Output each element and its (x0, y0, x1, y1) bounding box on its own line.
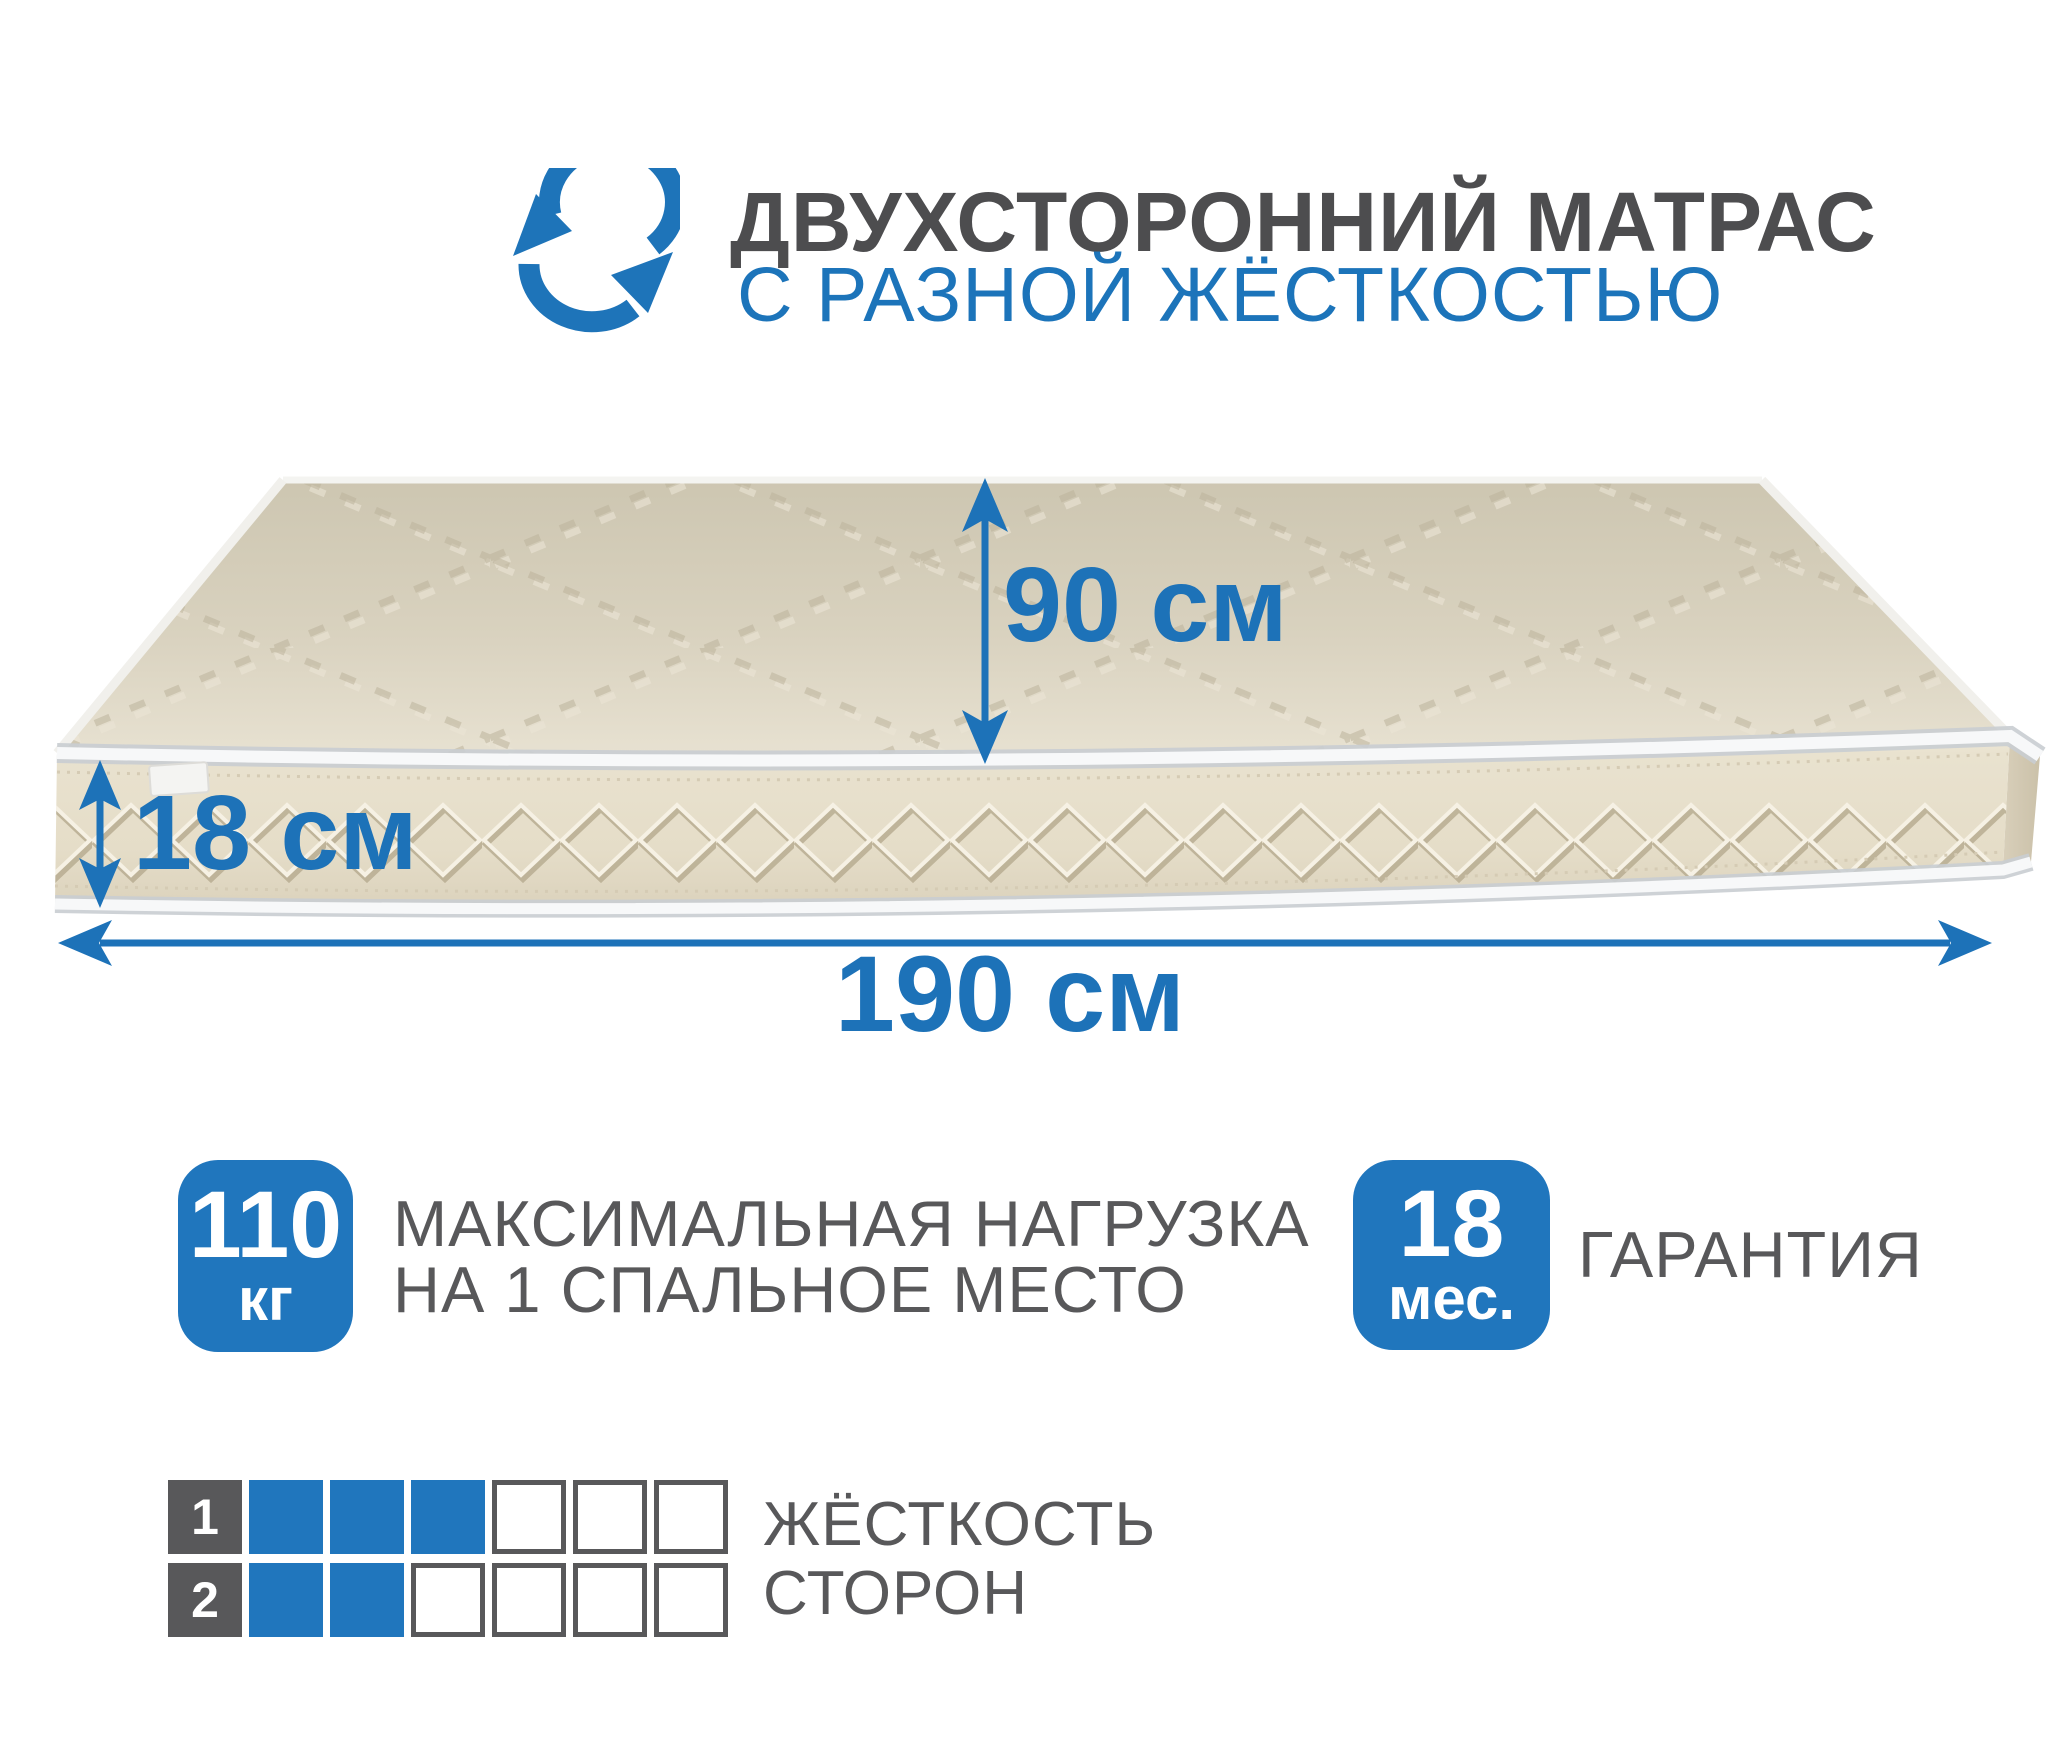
firmness-cell-empty (654, 1480, 728, 1554)
max-load-badge: 110 кг (178, 1160, 353, 1352)
width-dimension-label: 90 см (1003, 552, 1288, 658)
firmness-grid: 12 (168, 1480, 728, 1646)
max-load-value: 110 (189, 1182, 342, 1269)
firmness-cell-empty (492, 1563, 566, 1637)
firmness-cell-filled (330, 1563, 404, 1637)
infographic-canvas: ДВУХСТОРОННИЙ МАТРАС С РАЗНОЙ ЖЁСТКОСТЬЮ… (0, 0, 2048, 1757)
firmness-cell-empty (411, 1563, 485, 1637)
firmness-cell-empty (573, 1480, 647, 1554)
max-load-description-line1: МАКСИМАЛЬНАЯ НАГРУЗКА (393, 1191, 1310, 1257)
max-load-unit: кг (238, 1270, 293, 1330)
firmness-side-number: 2 (168, 1563, 242, 1637)
warranty-unit: мес. (1388, 1269, 1515, 1329)
firmness-row: 1 (168, 1480, 728, 1554)
firmness-cell-filled (330, 1480, 404, 1554)
max-load-description: МАКСИМАЛЬНАЯ НАГРУЗКА НА 1 СПАЛЬНОЕ МЕСТ… (393, 1191, 1310, 1323)
firmness-cell-filled (249, 1480, 323, 1554)
warranty-badge: 18 мес. (1353, 1160, 1550, 1350)
length-dimension-label: 190 см (710, 940, 1310, 1048)
firmness-cell-filled (249, 1563, 323, 1637)
firmness-side-number: 1 (168, 1480, 242, 1554)
page-subtitle: С РАЗНОЙ ЖЁСТКОСТЬЮ (737, 257, 1723, 334)
firmness-label-line2: СТОРОН (763, 1563, 1028, 1625)
rotate-arrows-icon (505, 168, 680, 338)
warranty-value: 18 (1399, 1181, 1505, 1268)
firmness-label-line1: ЖЁСТКОСТЬ (763, 1494, 1156, 1556)
firmness-cell-empty (492, 1480, 566, 1554)
warranty-description: ГАРАНТИЯ (1578, 1222, 1923, 1288)
firmness-cell-empty (654, 1563, 728, 1637)
firmness-row: 2 (168, 1563, 728, 1637)
max-load-description-line2: НА 1 СПАЛЬНОЕ МЕСТО (393, 1257, 1310, 1323)
firmness-cell-empty (573, 1563, 647, 1637)
height-dimension-label: 18 см (133, 780, 418, 886)
firmness-cell-filled (411, 1480, 485, 1554)
